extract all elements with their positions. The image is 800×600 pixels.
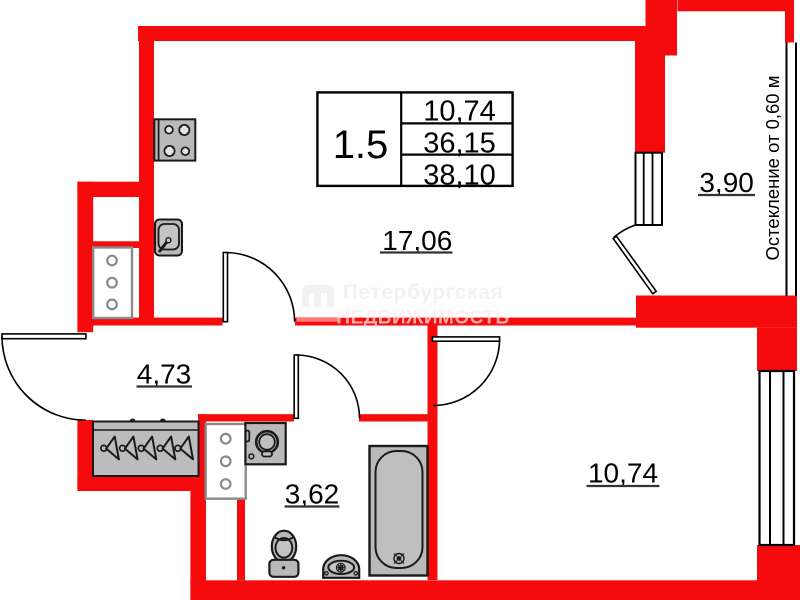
svg-text:3,90: 3,90	[699, 167, 754, 198]
svg-text:Петербургская: Петербургская	[343, 281, 504, 304]
svg-text:17,06: 17,06	[382, 225, 452, 256]
svg-text:3,62: 3,62	[285, 479, 340, 510]
svg-text:38,10: 38,10	[423, 159, 496, 191]
svg-text:10,74: 10,74	[588, 458, 658, 489]
svg-text:НЕДВИЖИМОСТЬ: НЕДВИЖИМОСТЬ	[336, 308, 509, 329]
svg-text:Остекление от 0,60 м: Остекление от 0,60 м	[762, 76, 783, 261]
svg-text:1.5: 1.5	[333, 123, 389, 167]
svg-text:36,15: 36,15	[423, 128, 496, 160]
svg-text:4,73: 4,73	[137, 359, 192, 390]
svg-text:10,74: 10,74	[423, 96, 496, 128]
